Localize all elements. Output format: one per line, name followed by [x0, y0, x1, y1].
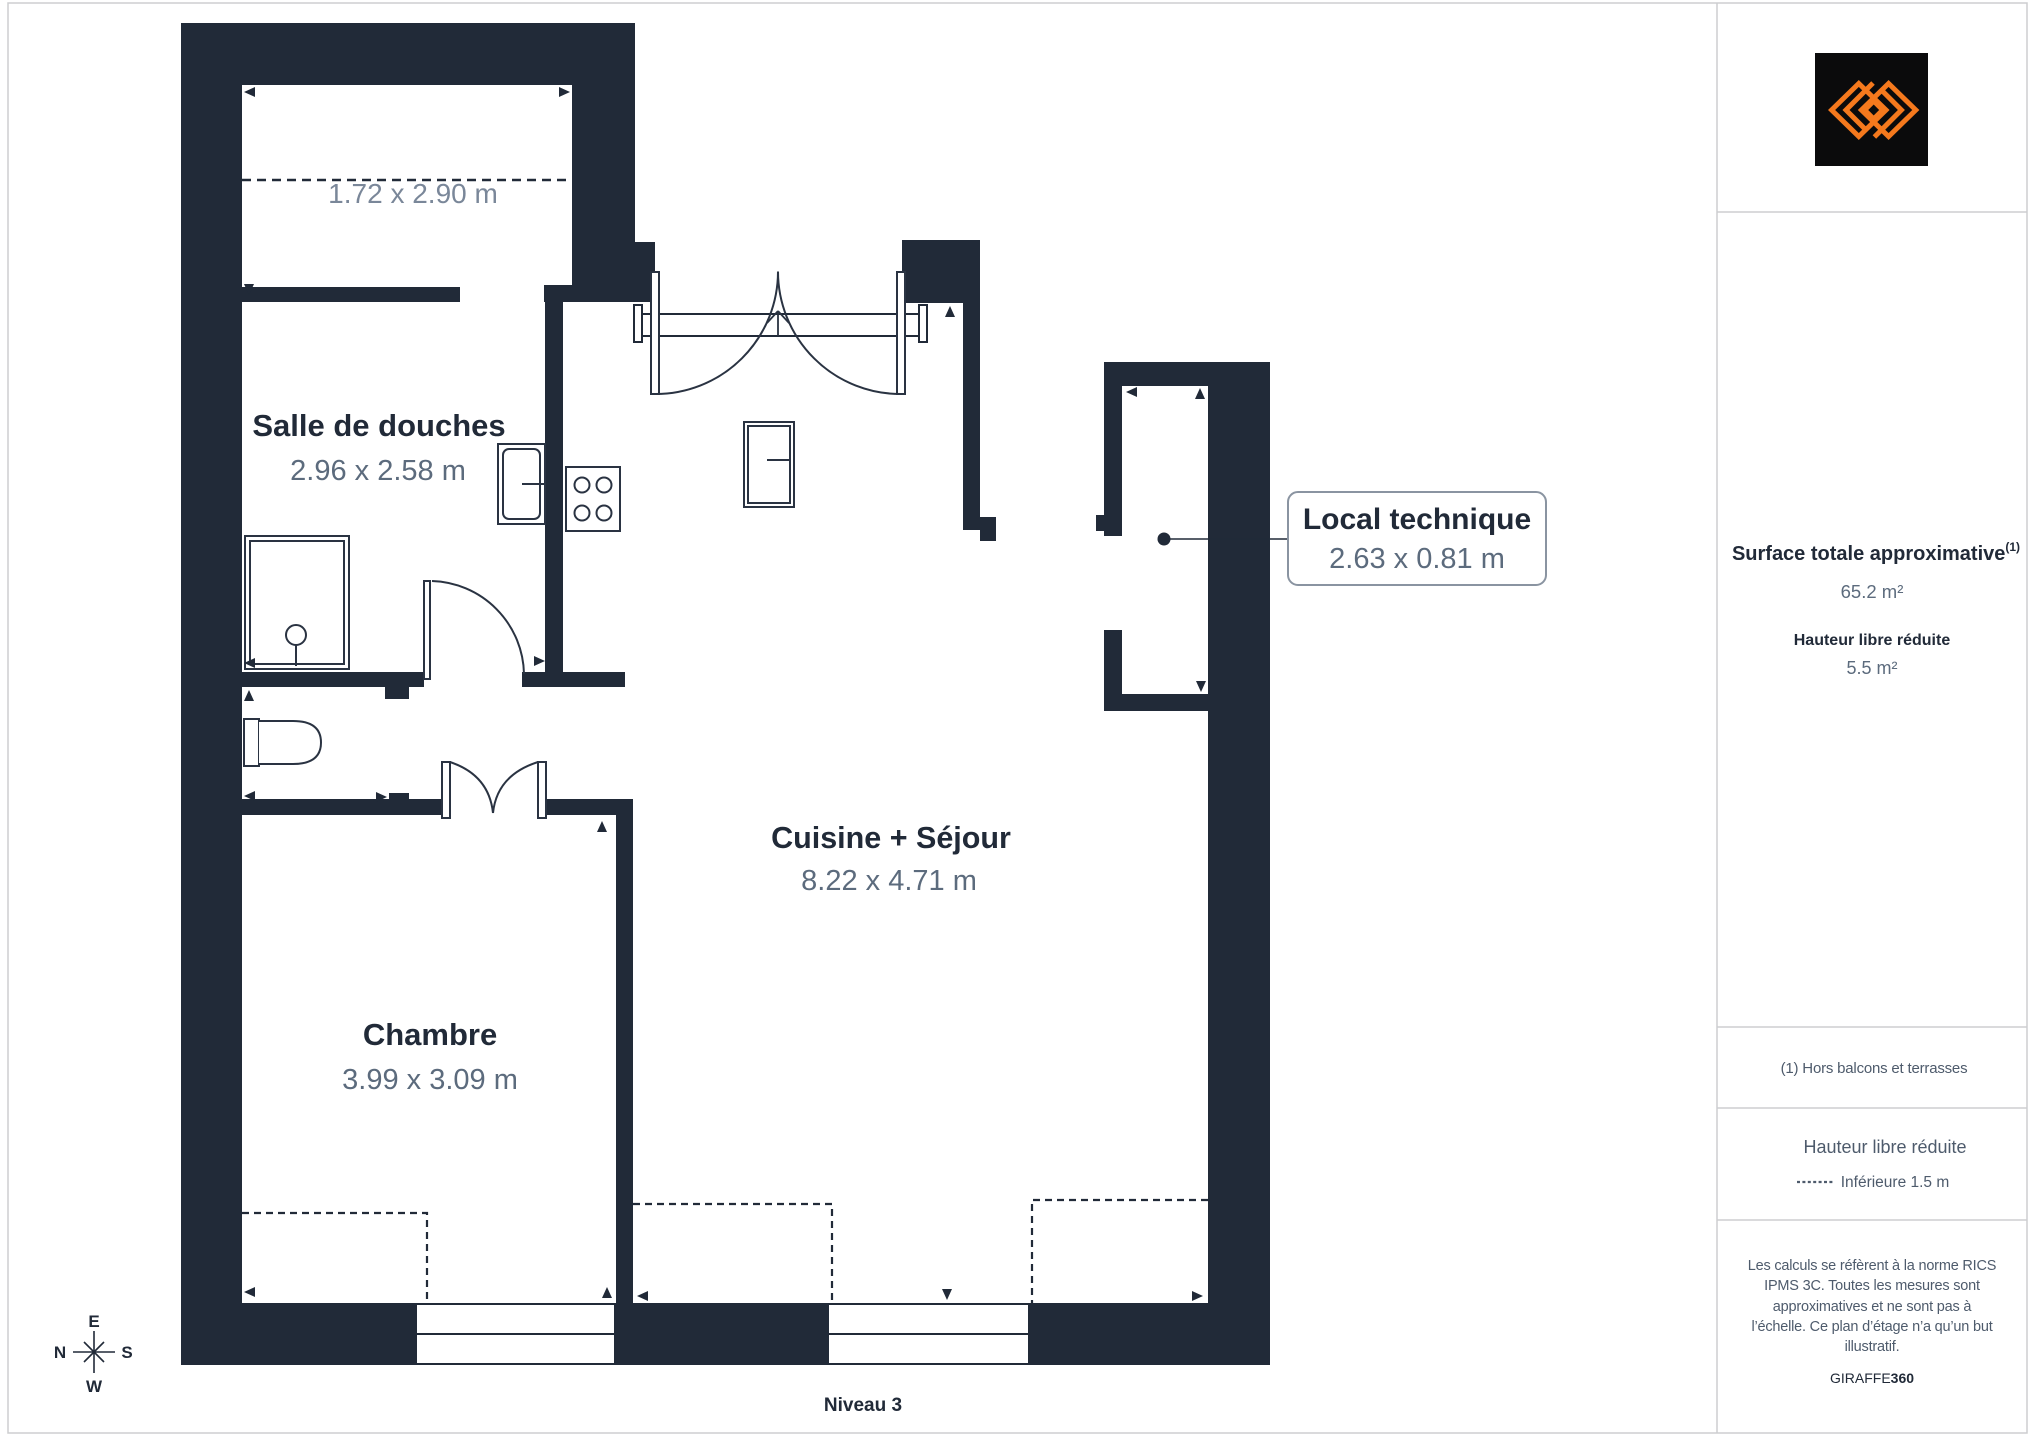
svg-text:5.5 m²: 5.5 m² — [1846, 658, 1897, 678]
svg-text:Cuisine + Séjour: Cuisine + Séjour — [771, 821, 1011, 855]
svg-text:Surface totale approximative(1: Surface totale approximative(1) — [1732, 540, 2020, 565]
svg-text:illustratif.: illustratif. — [1845, 1339, 1900, 1355]
svg-text:E: E — [88, 1312, 99, 1331]
svg-text:Hauteur libre réduite: Hauteur libre réduite — [1803, 1137, 1966, 1157]
svg-text:N: N — [54, 1343, 66, 1362]
svg-text:Hauteur libre réduite: Hauteur libre réduite — [1794, 632, 1951, 649]
svg-text:GIRAFFE360: GIRAFFE360 — [1830, 1370, 1914, 1386]
svg-text:Les calculs se réfèrent à la n: Les calculs se réfèrent à la norme RICS — [1748, 1258, 1996, 1274]
svg-text:IPMS 3C. Toutes les mesures so: IPMS 3C. Toutes les mesures sont — [1764, 1278, 1980, 1294]
svg-text:Chambre: Chambre — [363, 1017, 497, 1052]
svg-text:Inférieure 1.5 m: Inférieure 1.5 m — [1841, 1174, 1950, 1191]
svg-text:1.72 x 2.90 m: 1.72 x 2.90 m — [328, 178, 498, 209]
svg-text:W: W — [86, 1377, 103, 1396]
svg-text:approximatives et ne sont pas: approximatives et ne sont pas à — [1773, 1299, 1973, 1315]
svg-text:3.99 x 3.09 m: 3.99 x 3.09 m — [342, 1064, 518, 1096]
svg-text:(1) Hors balcons et terrasses: (1) Hors balcons et terrasses — [1781, 1060, 1968, 1077]
svg-text:2.96 x 2.58 m: 2.96 x 2.58 m — [290, 455, 466, 487]
svg-text:65.2 m²: 65.2 m² — [1841, 581, 1904, 602]
svg-text:l’échelle. Ce plan d’étage n’a: l’échelle. Ce plan d’étage n’a qu’un but — [1751, 1319, 1992, 1335]
svg-text:8.22 x 4.71 m: 8.22 x 4.71 m — [801, 865, 977, 897]
svg-text:Salle de douches: Salle de douches — [252, 408, 505, 443]
svg-text:2.63 x 0.81 m: 2.63 x 0.81 m — [1329, 543, 1505, 575]
svg-text:Niveau 3: Niveau 3 — [824, 1395, 902, 1416]
svg-text:S: S — [121, 1343, 132, 1362]
svg-text:Local technique: Local technique — [1303, 503, 1531, 536]
